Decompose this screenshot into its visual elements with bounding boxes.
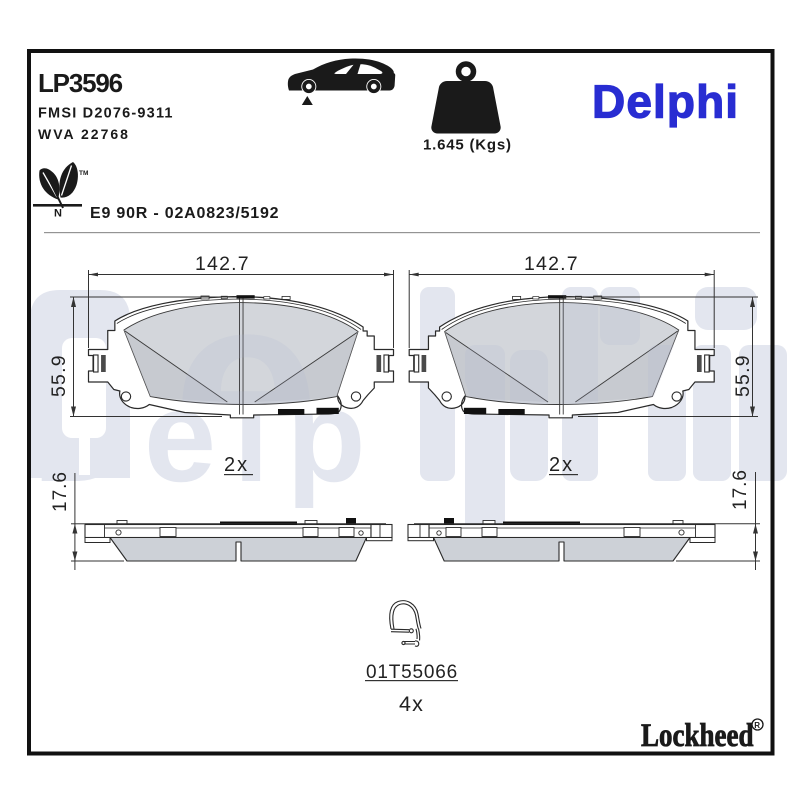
svg-text:142.7: 142.7 bbox=[195, 253, 250, 275]
svg-text:E9 90R - 02A0823/5192: E9 90R - 02A0823/5192 bbox=[90, 205, 279, 222]
svg-text:Lockheed: Lockheed bbox=[641, 718, 754, 754]
svg-text:N: N bbox=[54, 208, 62, 220]
svg-text:WVA 22768: WVA 22768 bbox=[38, 126, 130, 142]
svg-text:17.6: 17.6 bbox=[50, 471, 71, 512]
svg-text:2x: 2x bbox=[549, 454, 574, 476]
svg-text:142.7: 142.7 bbox=[524, 253, 579, 275]
svg-text:17.6: 17.6 bbox=[730, 469, 751, 510]
svg-text:FMSI D2076-9311: FMSI D2076-9311 bbox=[38, 105, 174, 121]
svg-text:2x: 2x bbox=[224, 454, 249, 476]
svg-text:01T55066: 01T55066 bbox=[366, 662, 458, 683]
svg-text:55.9: 55.9 bbox=[732, 354, 754, 397]
svg-text:4x: 4x bbox=[399, 692, 424, 716]
svg-text:55.9: 55.9 bbox=[48, 354, 70, 397]
svg-text:LP3596: LP3596 bbox=[38, 68, 123, 98]
svg-text:Delphi: Delphi bbox=[592, 76, 739, 128]
svg-text:TM: TM bbox=[79, 170, 88, 177]
svg-text:1.645 (Kgs): 1.645 (Kgs) bbox=[423, 137, 512, 154]
svg-text:R: R bbox=[754, 721, 760, 730]
